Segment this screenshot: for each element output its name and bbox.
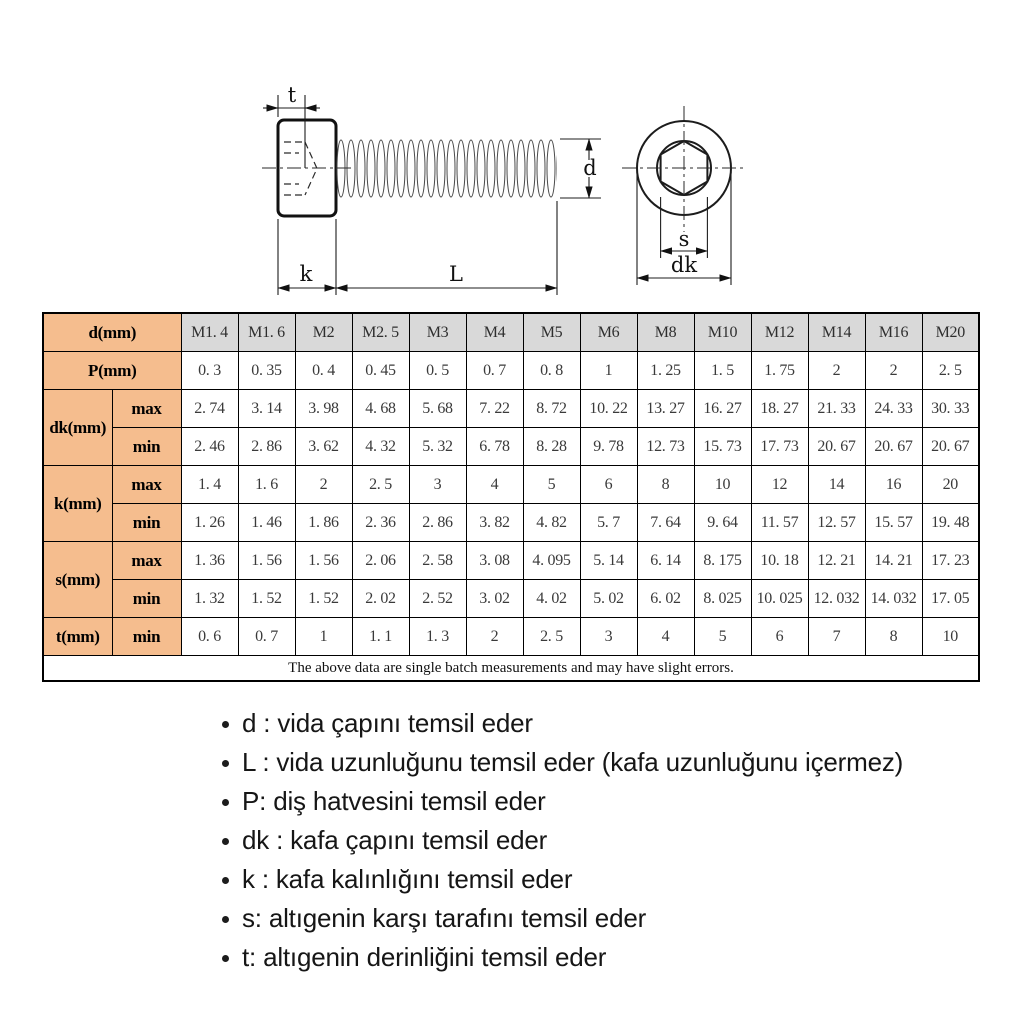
value-cell: 4. 095 [523, 542, 580, 580]
value-cell: 2. 58 [409, 542, 466, 580]
value-cell: 19. 48 [922, 504, 979, 542]
col-header-size: M1. 6 [238, 313, 295, 352]
col-header-size: M12 [751, 313, 808, 352]
value-cell: 5 [523, 466, 580, 504]
value-cell: 11. 57 [751, 504, 808, 542]
value-cell: 2. 06 [352, 542, 409, 580]
value-cell: 2. 86 [409, 504, 466, 542]
value-cell: 14. 21 [865, 542, 922, 580]
legend-item-dk: dk : kafa çapını temsil eder [222, 821, 903, 860]
value-cell: 3. 14 [238, 390, 295, 428]
value-cell: 1. 56 [238, 542, 295, 580]
value-cell: 17. 73 [751, 428, 808, 466]
value-cell: 0. 5 [409, 352, 466, 390]
table-row: The above data are single batch measurem… [43, 656, 979, 682]
dim-label-L: L [449, 262, 463, 286]
value-cell: 1. 56 [295, 542, 352, 580]
value-cell: 2. 36 [352, 504, 409, 542]
value-cell: 2. 5 [352, 466, 409, 504]
value-cell: 1. 86 [295, 504, 352, 542]
value-cell: 4 [637, 618, 694, 656]
subrow-header: min [112, 618, 181, 656]
value-cell: 16. 27 [694, 390, 751, 428]
value-cell: 10. 22 [580, 390, 637, 428]
value-cell: 3 [409, 466, 466, 504]
value-cell: 0. 45 [352, 352, 409, 390]
row-header: t(mm) [43, 618, 112, 656]
value-cell: 7 [808, 618, 865, 656]
value-cell: 17. 05 [922, 580, 979, 618]
col-header-size: M3 [409, 313, 466, 352]
value-cell: 2. 5 [523, 618, 580, 656]
dimensions-table-wrap: d(mm)M1. 4M1. 6M2M2. 5M3M4M5M6M8M10M12M1… [42, 312, 980, 682]
col-header-size: M5 [523, 313, 580, 352]
value-cell: 0. 7 [238, 618, 295, 656]
subrow-header: min [112, 428, 181, 466]
col-header-size: M20 [922, 313, 979, 352]
dimension-d: d [560, 139, 601, 198]
col-header-size: M2 [295, 313, 352, 352]
value-cell: 0. 4 [295, 352, 352, 390]
value-cell: 3 [580, 618, 637, 656]
table-row: t(mm)min0. 60. 711. 11. 322. 534567810 [43, 618, 979, 656]
value-cell: 3. 62 [295, 428, 352, 466]
dim-label-s: s [679, 227, 690, 251]
value-cell: 6 [751, 618, 808, 656]
legend-item-L: L : vida uzunluğunu temsil eder (kafa uz… [222, 743, 903, 782]
bullet-icon [222, 877, 229, 884]
value-cell: 0. 7 [466, 352, 523, 390]
value-cell: 6. 14 [637, 542, 694, 580]
value-cell: 8. 175 [694, 542, 751, 580]
value-cell: 14 [808, 466, 865, 504]
bullet-icon [222, 916, 229, 923]
value-cell: 1. 46 [238, 504, 295, 542]
value-cell: 1. 6 [238, 466, 295, 504]
value-cell: 4. 02 [523, 580, 580, 618]
value-cell: 9. 78 [580, 428, 637, 466]
value-cell: 6. 78 [466, 428, 523, 466]
legend-text: t: altıgenin derinliğini temsil eder [242, 942, 606, 973]
row-header: s(mm) [43, 542, 112, 618]
subrow-header: min [112, 504, 181, 542]
value-cell: 4. 68 [352, 390, 409, 428]
value-cell: 8 [637, 466, 694, 504]
legend-text: dk : kafa çapını temsil eder [242, 825, 547, 856]
subrow-header: max [112, 390, 181, 428]
value-cell: 21. 33 [808, 390, 865, 428]
value-cell: 2 [865, 352, 922, 390]
value-cell: 3. 82 [466, 504, 523, 542]
value-cell: 8 [865, 618, 922, 656]
table-footer-note: The above data are single batch measurem… [43, 656, 979, 682]
col-header-size: M6 [580, 313, 637, 352]
value-cell: 2. 5 [922, 352, 979, 390]
legend-item-d: d : vida çapını temsil eder [222, 704, 903, 743]
value-cell: 12. 032 [808, 580, 865, 618]
value-cell: 14. 032 [865, 580, 922, 618]
table-row: d(mm)M1. 4M1. 6M2M2. 5M3M4M5M6M8M10M12M1… [43, 313, 979, 352]
bullet-icon [222, 760, 229, 767]
value-cell: 2. 02 [352, 580, 409, 618]
value-cell: 2 [295, 466, 352, 504]
value-cell: 15. 73 [694, 428, 751, 466]
value-cell: 5 [694, 618, 751, 656]
row-header: k(mm) [43, 466, 112, 542]
value-cell: 10 [922, 618, 979, 656]
value-cell: 13. 27 [637, 390, 694, 428]
legend-text: P: diş hatvesini temsil eder [242, 786, 546, 817]
value-cell: 2. 86 [238, 428, 295, 466]
value-cell: 1. 52 [295, 580, 352, 618]
value-cell: 1. 3 [409, 618, 466, 656]
value-cell: 5. 14 [580, 542, 637, 580]
value-cell: 9. 64 [694, 504, 751, 542]
legend-item-k: k : kafa kalınlığını temsil eder [222, 860, 903, 899]
value-cell: 1 [580, 352, 637, 390]
value-cell: 0. 6 [181, 618, 238, 656]
value-cell: 1. 36 [181, 542, 238, 580]
value-cell: 12 [751, 466, 808, 504]
value-cell: 30. 33 [922, 390, 979, 428]
value-cell: 10 [694, 466, 751, 504]
dim-label-t: t [288, 83, 297, 107]
screw-end-view [622, 106, 746, 232]
value-cell: 5. 7 [580, 504, 637, 542]
table-row: dk(mm)max2. 743. 143. 984. 685. 687. 228… [43, 390, 979, 428]
table-row: P(mm)0. 30. 350. 40. 450. 50. 70. 811. 2… [43, 352, 979, 390]
value-cell: 20 [922, 466, 979, 504]
value-cell: 20. 67 [808, 428, 865, 466]
value-cell: 1. 75 [751, 352, 808, 390]
dimensions-table: d(mm)M1. 4M1. 6M2M2. 5M3M4M5M6M8M10M12M1… [42, 312, 980, 682]
value-cell: 8. 025 [694, 580, 751, 618]
value-cell: 16 [865, 466, 922, 504]
value-cell: 1. 25 [637, 352, 694, 390]
col-header-size: M1. 4 [181, 313, 238, 352]
page: t k L d [0, 0, 1024, 1024]
value-cell: 4. 32 [352, 428, 409, 466]
value-cell: 7. 22 [466, 390, 523, 428]
value-cell: 6. 02 [637, 580, 694, 618]
value-cell: 1. 5 [694, 352, 751, 390]
value-cell: 0. 8 [523, 352, 580, 390]
table-row: s(mm)max1. 361. 561. 562. 062. 583. 084.… [43, 542, 979, 580]
value-cell: 2. 52 [409, 580, 466, 618]
value-cell: 1. 52 [238, 580, 295, 618]
legend-list: d : vida çapını temsil eder L : vida uzu… [222, 704, 903, 977]
subrow-header: max [112, 542, 181, 580]
screw-side-view [262, 120, 557, 216]
bullet-icon [222, 721, 229, 728]
subrow-header: min [112, 580, 181, 618]
value-cell: 0. 35 [238, 352, 295, 390]
value-cell: 3. 98 [295, 390, 352, 428]
table-row: min2. 462. 863. 624. 325. 326. 788. 289.… [43, 428, 979, 466]
table-row: min1. 261. 461. 862. 362. 863. 824. 825.… [43, 504, 979, 542]
legend-text: d : vida çapını temsil eder [242, 708, 533, 739]
col-header-size: M8 [637, 313, 694, 352]
value-cell: 5. 02 [580, 580, 637, 618]
value-cell: 1. 4 [181, 466, 238, 504]
value-cell: 4 [466, 466, 523, 504]
value-cell: 6 [580, 466, 637, 504]
table-row: k(mm)max1. 41. 622. 5345681012141620 [43, 466, 979, 504]
value-cell: 2 [808, 352, 865, 390]
col-header-size: M4 [466, 313, 523, 352]
col-header-size: M10 [694, 313, 751, 352]
legend-text: L : vida uzunluğunu temsil eder (kafa uz… [242, 747, 903, 778]
value-cell: 10. 18 [751, 542, 808, 580]
value-cell: 2. 46 [181, 428, 238, 466]
col-header-size: M16 [865, 313, 922, 352]
value-cell: 2. 74 [181, 390, 238, 428]
screw-thread-shaft [336, 139, 557, 198]
value-cell: 5. 68 [409, 390, 466, 428]
legend-text: k : kafa kalınlığını temsil eder [242, 864, 572, 895]
legend-item-t: t: altıgenin derinliğini temsil eder [222, 938, 903, 977]
screw-technical-drawing: t k L d [0, 0, 1024, 306]
dim-label-d: d [583, 156, 596, 180]
legend-item-s: s: altıgenin karşı tarafını temsil eder [222, 899, 903, 938]
value-cell: 3. 02 [466, 580, 523, 618]
value-cell: 2 [466, 618, 523, 656]
bullet-icon [222, 955, 229, 962]
value-cell: 8. 28 [523, 428, 580, 466]
row-header-d: d(mm) [43, 313, 181, 352]
col-header-size: M14 [808, 313, 865, 352]
value-cell: 7. 64 [637, 504, 694, 542]
value-cell: 10. 025 [751, 580, 808, 618]
value-cell: 0. 3 [181, 352, 238, 390]
value-cell: 3. 08 [466, 542, 523, 580]
table-row: min1. 321. 521. 522. 022. 523. 024. 025.… [43, 580, 979, 618]
value-cell: 1. 1 [352, 618, 409, 656]
bullet-icon [222, 838, 229, 845]
value-cell: 15. 57 [865, 504, 922, 542]
row-header-p: P(mm) [43, 352, 181, 390]
value-cell: 20. 67 [865, 428, 922, 466]
col-header-size: M2. 5 [352, 313, 409, 352]
dim-label-dk: dk [671, 253, 697, 277]
value-cell: 12. 73 [637, 428, 694, 466]
value-cell: 8. 72 [523, 390, 580, 428]
value-cell: 20. 67 [922, 428, 979, 466]
legend-item-P: P: diş hatvesini temsil eder [222, 782, 903, 821]
bullet-icon [222, 799, 229, 806]
value-cell: 4. 82 [523, 504, 580, 542]
subrow-header: max [112, 466, 181, 504]
row-header: dk(mm) [43, 390, 112, 466]
value-cell: 1. 32 [181, 580, 238, 618]
value-cell: 24. 33 [865, 390, 922, 428]
value-cell: 17. 23 [922, 542, 979, 580]
value-cell: 5. 32 [409, 428, 466, 466]
legend-text: s: altıgenin karşı tarafını temsil eder [242, 903, 646, 934]
value-cell: 1 [295, 618, 352, 656]
dim-label-k: k [300, 262, 313, 286]
value-cell: 18. 27 [751, 390, 808, 428]
value-cell: 12. 57 [808, 504, 865, 542]
value-cell: 12. 21 [808, 542, 865, 580]
value-cell: 1. 26 [181, 504, 238, 542]
